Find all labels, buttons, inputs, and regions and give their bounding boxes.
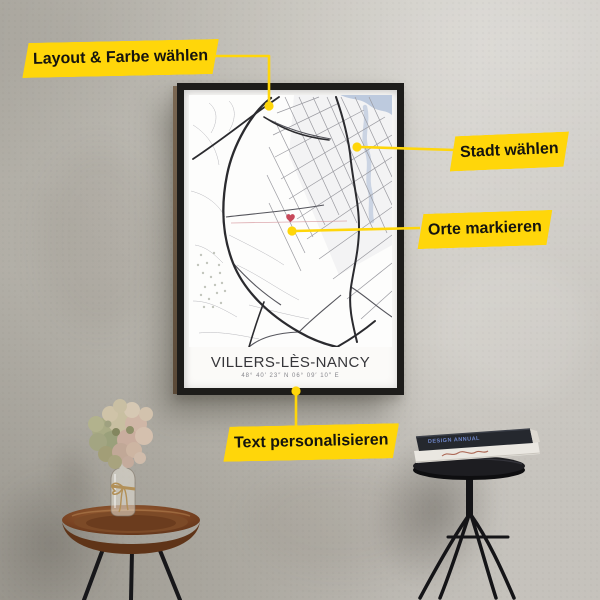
label-layout-color[interactable]: Layout & Farbe wählen <box>22 39 220 78</box>
wall-smudge <box>40 150 160 330</box>
book-stack: DESIGN ANNUAL <box>414 429 540 463</box>
scene: VILLERS-LÈS-NANCY 48° 40′ 23″ N 06° 09′ … <box>0 0 600 600</box>
table-legs <box>84 548 180 600</box>
poster-frame: VILLERS-LÈS-NANCY 48° 40′ 23″ N 06° 09′ … <box>177 83 404 395</box>
poster-coordinates: 48° 40′ 23″ N 06° 09′ 10″ E <box>189 373 392 379</box>
wall-smudge <box>440 260 590 400</box>
side-table <box>20 390 240 600</box>
label-places[interactable]: Orte markieren <box>416 210 553 249</box>
map-poster: VILLERS-LÈS-NANCY 48° 40′ 23″ N 06° 09′ … <box>184 90 397 388</box>
flower-bouquet <box>88 399 153 469</box>
poster-title: VILLERS-LÈS-NANCY <box>189 354 392 371</box>
city-map <box>189 95 392 347</box>
label-personalize[interactable]: Text personalisieren <box>223 423 400 462</box>
label-city[interactable]: Stadt wählen <box>448 131 570 171</box>
stool-legs <box>420 515 514 598</box>
stool: DESIGN ANNUAL <box>390 415 570 600</box>
